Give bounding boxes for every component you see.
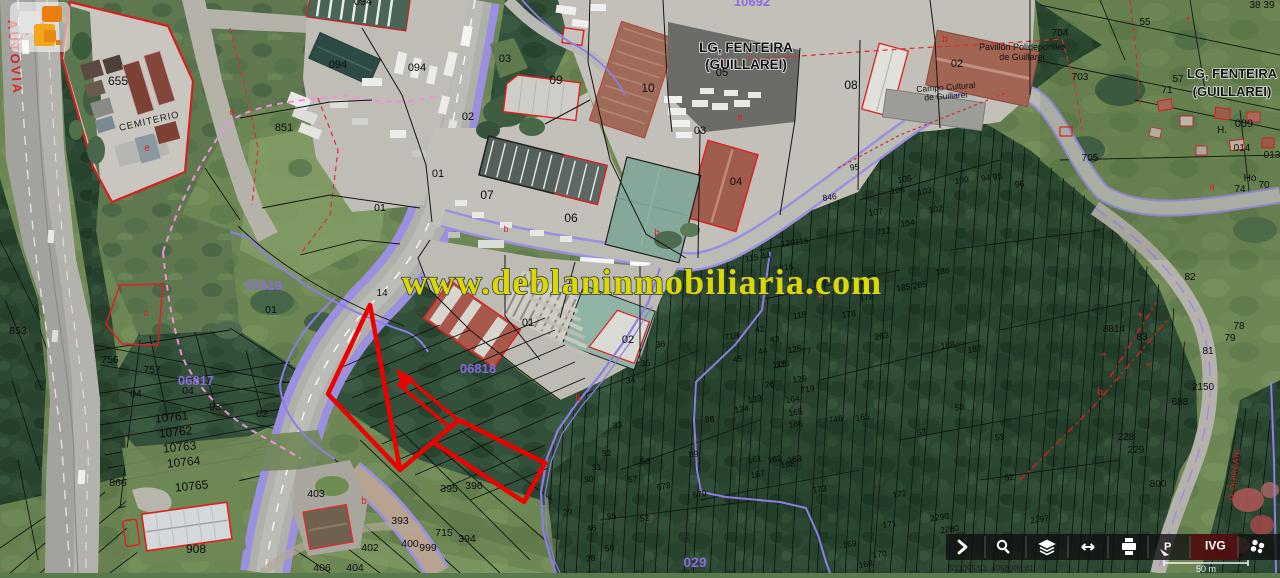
svg-text:103: 103 bbox=[917, 185, 933, 197]
svg-text:42: 42 bbox=[754, 323, 765, 334]
svg-text:165: 165 bbox=[855, 411, 871, 423]
svg-text:14: 14 bbox=[376, 288, 388, 299]
svg-text:52: 52 bbox=[1004, 471, 1015, 482]
svg-text:32: 32 bbox=[601, 447, 612, 458]
svg-text:133: 133 bbox=[747, 393, 763, 405]
svg-text:77: 77 bbox=[801, 345, 812, 356]
svg-text:102: 102 bbox=[928, 203, 944, 215]
svg-text:96: 96 bbox=[1014, 178, 1025, 189]
svg-text:171: 171 bbox=[882, 518, 898, 530]
svg-text:169: 169 bbox=[842, 538, 858, 550]
svg-text:703: 703 bbox=[1072, 72, 1089, 83]
svg-text:167: 167 bbox=[750, 468, 766, 480]
svg-text:107: 107 bbox=[868, 206, 884, 218]
svg-text:396: 396 bbox=[465, 480, 483, 492]
svg-text:172: 172 bbox=[892, 488, 908, 500]
svg-text:05: 05 bbox=[716, 67, 728, 79]
svg-text:393: 393 bbox=[391, 515, 409, 527]
svg-text:10692: 10692 bbox=[734, 0, 770, 9]
svg-text:03: 03 bbox=[499, 53, 511, 65]
svg-text:de Guillarei: de Guillarei bbox=[999, 52, 1045, 62]
svg-text:d: d bbox=[143, 308, 148, 318]
svg-text:170: 170 bbox=[872, 548, 888, 560]
svg-text:57: 57 bbox=[1172, 74, 1184, 85]
svg-text:02: 02 bbox=[951, 58, 963, 70]
svg-text:166: 166 bbox=[788, 418, 804, 430]
svg-text:853: 853 bbox=[9, 325, 27, 337]
svg-text:45: 45 bbox=[732, 353, 743, 364]
svg-text:46: 46 bbox=[586, 522, 597, 533]
svg-text:866: 866 bbox=[109, 477, 127, 489]
svg-text:168: 168 bbox=[858, 558, 874, 570]
svg-text:02: 02 bbox=[622, 334, 634, 346]
svg-text:+: + bbox=[1101, 350, 1107, 361]
svg-text:82: 82 bbox=[1184, 272, 1196, 283]
svg-text:187: 187 bbox=[967, 343, 983, 355]
svg-text:74: 74 bbox=[1234, 184, 1246, 195]
svg-text:58: 58 bbox=[954, 401, 965, 412]
svg-text:IVG: IVG bbox=[1205, 539, 1226, 553]
svg-text:403: 403 bbox=[307, 488, 325, 500]
svg-text:851: 851 bbox=[275, 122, 293, 134]
svg-text:404: 404 bbox=[346, 562, 364, 573]
svg-text:173: 173 bbox=[812, 483, 828, 495]
svg-text:52: 52 bbox=[639, 512, 650, 523]
svg-text:8814: 8814 bbox=[1103, 324, 1126, 335]
svg-text:678: 678 bbox=[656, 480, 672, 492]
svg-text:705: 705 bbox=[1082, 153, 1099, 164]
svg-text:b: b bbox=[942, 34, 948, 45]
svg-text:126: 126 bbox=[792, 373, 808, 385]
svg-text:009: 009 bbox=[1235, 118, 1253, 130]
svg-text:715: 715 bbox=[435, 527, 453, 539]
svg-text:10: 10 bbox=[641, 81, 655, 95]
svg-text:655: 655 bbox=[108, 74, 128, 88]
svg-text:531095.53, 4058005.81: 531095.53, 4058005.81 bbox=[949, 564, 1034, 573]
svg-text:164: 164 bbox=[785, 393, 801, 405]
svg-text:186: 186 bbox=[935, 265, 951, 277]
svg-text:www.deblaninmobiliaria.com: www.deblaninmobiliaria.com bbox=[402, 262, 883, 302]
svg-text:LG, FENTEIRA: LG, FENTEIRA bbox=[1187, 66, 1278, 81]
svg-text:28: 28 bbox=[585, 552, 596, 563]
svg-text:53: 53 bbox=[994, 431, 1005, 442]
svg-text:704: 704 bbox=[1052, 28, 1069, 39]
svg-text:95: 95 bbox=[849, 161, 860, 172]
svg-text:55: 55 bbox=[606, 510, 617, 521]
svg-text:105: 105 bbox=[897, 173, 913, 185]
svg-text:06818: 06818 bbox=[460, 361, 496, 376]
svg-text:b: b bbox=[361, 496, 367, 507]
svg-text:406: 406 bbox=[313, 562, 331, 573]
svg-text:e: e bbox=[144, 143, 150, 154]
svg-text:35: 35 bbox=[640, 357, 651, 368]
svg-text:688: 688 bbox=[1172, 397, 1189, 408]
svg-text:161: 161 bbox=[747, 453, 763, 465]
svg-text:79: 79 bbox=[1224, 333, 1236, 344]
svg-text:094: 094 bbox=[408, 62, 426, 74]
svg-text:38 39: 38 39 bbox=[1249, 0, 1274, 11]
svg-text:03: 03 bbox=[209, 401, 221, 413]
svg-text:H.: H. bbox=[1217, 125, 1227, 136]
svg-text:02: 02 bbox=[462, 111, 474, 123]
svg-text:014: 014 bbox=[1234, 143, 1251, 154]
svg-text:846: 846 bbox=[822, 191, 838, 203]
svg-text:LG, FENTEIRA: LG, FENTEIRA bbox=[699, 40, 793, 55]
svg-text:+: + bbox=[1145, 360, 1151, 371]
svg-text:04: 04 bbox=[730, 176, 742, 188]
svg-text:33: 33 bbox=[612, 419, 623, 430]
svg-text:029: 029 bbox=[683, 554, 707, 570]
svg-text:2150: 2150 bbox=[1192, 382, 1215, 393]
svg-text:(GUILLAREI): (GUILLAREI) bbox=[1193, 84, 1272, 99]
svg-text:43: 43 bbox=[769, 333, 780, 344]
svg-text:P: P bbox=[1164, 541, 1171, 553]
svg-text:57: 57 bbox=[627, 473, 638, 484]
svg-text:07819: 07819 bbox=[246, 278, 282, 293]
svg-text:679: 679 bbox=[692, 488, 708, 500]
svg-text:395: 395 bbox=[440, 483, 458, 495]
svg-text:134: 134 bbox=[734, 403, 750, 415]
svg-text:b: b bbox=[1097, 387, 1103, 398]
svg-text:b: b bbox=[654, 228, 660, 239]
svg-text:100: 100 bbox=[954, 174, 970, 186]
svg-text:31: 31 bbox=[591, 461, 602, 472]
svg-text:128: 128 bbox=[775, 358, 791, 370]
svg-text:165: 165 bbox=[788, 406, 804, 418]
svg-text:999: 999 bbox=[419, 542, 437, 554]
svg-text:118: 118 bbox=[792, 309, 807, 321]
svg-text:a: a bbox=[1209, 182, 1215, 193]
svg-text:01: 01 bbox=[432, 168, 444, 180]
svg-text:70: 70 bbox=[1258, 180, 1270, 191]
svg-text:44: 44 bbox=[757, 345, 768, 356]
svg-text:712: 712 bbox=[876, 225, 892, 237]
svg-text:71: 71 bbox=[1161, 85, 1173, 96]
svg-text:394: 394 bbox=[458, 533, 476, 545]
svg-text:78: 78 bbox=[1233, 321, 1245, 332]
svg-text:01: 01 bbox=[265, 304, 277, 316]
svg-text:34: 34 bbox=[625, 374, 636, 385]
svg-text:26: 26 bbox=[764, 378, 775, 389]
svg-text:757: 757 bbox=[143, 364, 161, 376]
svg-text:104: 104 bbox=[900, 217, 916, 229]
svg-text:228: 228 bbox=[1118, 432, 1135, 443]
svg-text:58: 58 bbox=[640, 455, 651, 466]
svg-text:83: 83 bbox=[1136, 332, 1148, 343]
svg-text:106: 106 bbox=[890, 184, 906, 196]
svg-text:125: 125 bbox=[787, 343, 803, 355]
svg-text:b: b bbox=[503, 224, 508, 234]
svg-text:800: 800 bbox=[1150, 479, 1167, 490]
svg-text:81: 81 bbox=[1202, 346, 1214, 357]
svg-text:b: b bbox=[575, 393, 581, 404]
svg-text:094: 094 bbox=[354, 0, 372, 8]
svg-text:229: 229 bbox=[1128, 445, 1145, 456]
svg-text:Pavillón Polideportivo: Pavillón Polideportivo bbox=[979, 42, 1065, 52]
svg-text:Ho: Ho bbox=[1244, 173, 1257, 184]
svg-text:d: d bbox=[229, 107, 234, 117]
svg-text:29: 29 bbox=[562, 506, 573, 517]
svg-text:188: 188 bbox=[940, 339, 956, 351]
svg-text:168: 168 bbox=[780, 458, 796, 470]
svg-text:094: 094 bbox=[329, 59, 347, 71]
svg-text:a: a bbox=[737, 112, 743, 123]
svg-text:013: 013 bbox=[1264, 150, 1280, 161]
svg-text:08: 08 bbox=[844, 78, 858, 92]
svg-text:402: 402 bbox=[361, 542, 379, 554]
svg-text:50: 50 bbox=[604, 542, 615, 553]
svg-text:+: + bbox=[1185, 14, 1191, 25]
svg-text:719: 719 bbox=[800, 383, 816, 395]
svg-text:178: 178 bbox=[841, 308, 857, 320]
svg-text:04: 04 bbox=[130, 388, 142, 400]
svg-text:756: 756 bbox=[101, 354, 119, 366]
svg-text:36: 36 bbox=[655, 338, 666, 349]
svg-text:50 m: 50 m bbox=[1196, 564, 1216, 573]
svg-text:718: 718 bbox=[724, 330, 740, 342]
svg-text:746: 746 bbox=[828, 413, 844, 425]
svg-text:09: 09 bbox=[549, 73, 563, 87]
svg-text:01: 01 bbox=[374, 202, 386, 214]
svg-text:57: 57 bbox=[916, 426, 927, 437]
svg-text:400: 400 bbox=[401, 538, 419, 550]
svg-text:908: 908 bbox=[186, 542, 206, 556]
svg-text:263: 263 bbox=[874, 330, 890, 342]
svg-text:88: 88 bbox=[704, 413, 715, 424]
svg-text:04: 04 bbox=[182, 385, 194, 397]
svg-text:03: 03 bbox=[694, 125, 706, 137]
svg-text:30: 30 bbox=[583, 473, 594, 484]
svg-text:55: 55 bbox=[1139, 17, 1151, 28]
svg-text:02: 02 bbox=[256, 408, 268, 420]
svg-text:01: 01 bbox=[522, 317, 534, 329]
svg-text:07: 07 bbox=[480, 188, 494, 202]
svg-text:89: 89 bbox=[688, 448, 699, 459]
svg-text:06: 06 bbox=[564, 211, 578, 225]
svg-text:+: + bbox=[1137, 310, 1143, 321]
